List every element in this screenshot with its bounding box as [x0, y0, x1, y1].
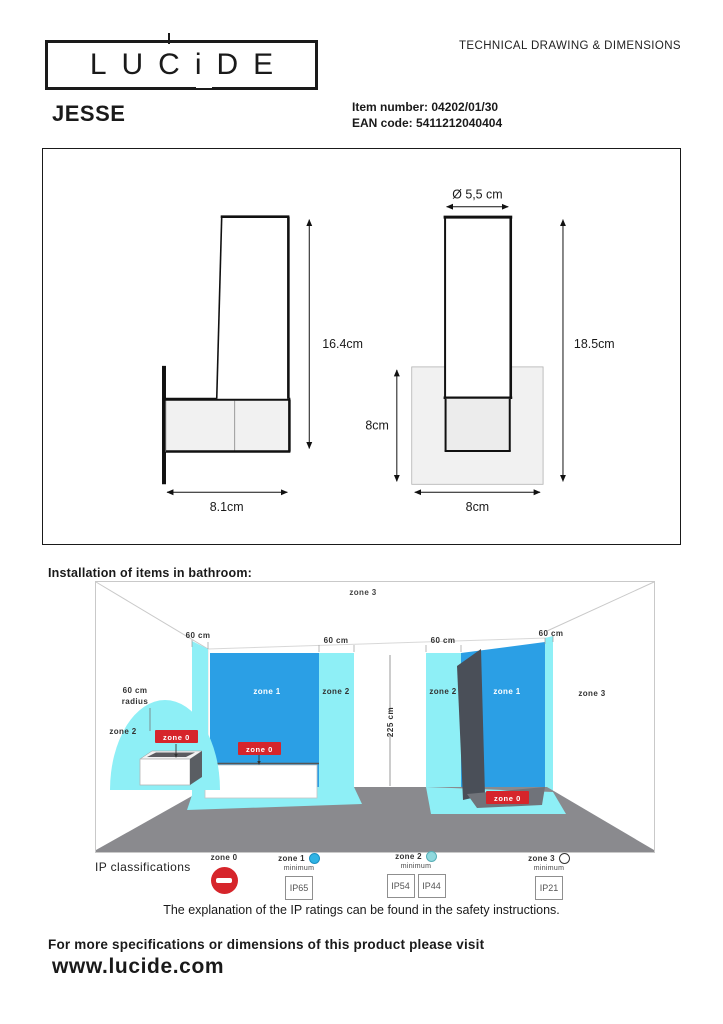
dim-225-label: 225 cm: [386, 707, 395, 737]
front-view-drawing: Ø 5,5 cm 8cm 18.5cm: [365, 188, 614, 514]
logo-accent-tick: [168, 33, 170, 44]
lamp-tube-front: [445, 217, 512, 399]
product-meta: Item number: 04202/01/30 EAN code: 54112…: [352, 99, 502, 131]
bathroom-zones-diagram: 225 cm zone 3 60 cm 60 cm 60 cm 60 cm zo…: [95, 581, 655, 853]
product-name: JESSE: [52, 101, 125, 127]
zone1-dot-icon: [309, 853, 320, 864]
zone2-b-label: zone 2: [429, 687, 456, 696]
ean-value: 5411212040404: [416, 116, 502, 130]
zone2-right-corner: [545, 636, 553, 795]
ean-label: EAN code:: [352, 116, 413, 130]
lamp-tube-side: [217, 217, 289, 399]
ip-legend-zone2: zone 2 minimum IP54 IP44: [384, 851, 448, 898]
zone3-wall-label: zone 3: [578, 689, 605, 698]
spec-sheet-page: LUCiDE TECHNICAL DRAWING & DIMENSIONS JE…: [0, 0, 723, 1024]
zone1-shower-label: zone 1: [493, 687, 520, 696]
dim60-bathtub: 60 cm: [324, 636, 349, 645]
ip-legend-zone3: zone 3 minimum IP21: [524, 853, 574, 900]
dimension-base-height: 8cm: [365, 370, 396, 481]
ip-legend-zone0: zone 0: [196, 853, 252, 894]
side-height-label: 16.4cm: [322, 337, 363, 351]
legend-zone3-label: zone 3: [528, 854, 555, 863]
zone3-circle-icon: [559, 853, 570, 864]
legend-zone1-label: zone 1: [278, 854, 305, 863]
ip-ratings-note: The explanation of the IP ratings can be…: [0, 903, 723, 917]
dim60-left: 60 cm: [186, 631, 211, 640]
zone2-minimum: minimum: [401, 863, 432, 870]
item-number-row: Item number: 04202/01/30: [352, 99, 502, 115]
ip65-box: IP65: [285, 876, 313, 900]
footer-text: For more specifications or dimensions of…: [48, 937, 484, 952]
zone0-bathtub-label: zone 0: [246, 745, 273, 754]
radius-label-1: 60 cm: [123, 686, 148, 695]
zone2-a-label: zone 2: [322, 687, 349, 696]
legend-zone0-label: zone 0: [211, 853, 238, 862]
diameter-label: Ø 5,5 cm: [452, 188, 502, 202]
ip54-box: IP54: [387, 874, 415, 898]
zone2-basin-label: zone 2: [109, 727, 136, 736]
legend-zone2-label: zone 2: [395, 852, 422, 861]
technical-drawing-panel: 16.4cm 8.1cm Ø 5,5 cm: [42, 148, 681, 545]
item-number-value: 04202/01/30: [431, 100, 498, 114]
zone1-minimum: minimum: [284, 865, 315, 872]
dimension-height-side: 16.4cm: [309, 220, 363, 449]
radius-label-2: radius: [122, 697, 149, 706]
technical-drawing-svg: 16.4cm 8.1cm Ø 5,5 cm: [43, 149, 680, 544]
dimension-width-side: 8.1cm: [167, 492, 287, 514]
lucide-logo-text: LUCiDE: [75, 48, 288, 82]
lucide-logo: LUCiDE: [45, 40, 318, 90]
dimension-base-width: 8cm: [415, 492, 540, 514]
logo-border-gap: [196, 84, 212, 88]
base-height-label: 8cm: [365, 419, 388, 433]
zone1-bathtub-label: zone 1: [253, 687, 280, 696]
item-number-label: Item number:: [352, 100, 428, 114]
lamp-base-side: [166, 400, 290, 452]
base-width-label: 8cm: [466, 500, 489, 514]
front-height-label: 18.5cm: [574, 337, 615, 351]
zone3-ceiling-label: zone 3: [349, 588, 376, 597]
dimension-total-height: 18.5cm: [563, 220, 615, 482]
washbasin-front: [140, 759, 190, 785]
bathtub-front: [205, 765, 317, 798]
side-width-label: 8.1cm: [210, 500, 244, 514]
no-entry-icon: [211, 867, 238, 894]
website-link[interactable]: www.lucide.com: [52, 955, 224, 979]
installation-title: Installation of items in bathroom:: [48, 566, 252, 580]
side-view-drawing: 16.4cm 8.1cm: [164, 217, 363, 515]
dim60-shower: 60 cm: [431, 636, 456, 645]
base-recess: [446, 399, 511, 451]
ean-row: EAN code: 5411212040404: [352, 115, 502, 131]
dim60-right: 60 cm: [539, 629, 564, 638]
zone2-dot-icon: [426, 851, 437, 862]
zone0-washbasin-label: zone 0: [163, 733, 190, 742]
ip21-box: IP21: [535, 876, 563, 900]
ip44-box: IP44: [418, 874, 446, 898]
ip-legend-zone1: zone 1 minimum IP65: [274, 853, 324, 900]
zone3-minimum: minimum: [534, 865, 565, 872]
document-title: TECHNICAL DRAWING & DIMENSIONS: [380, 40, 681, 52]
ip-classifications-title: IP classifications: [95, 860, 191, 874]
zone2-strip-left-of-shower: [426, 653, 461, 788]
zone2-strip-right-of-bathtub: [319, 653, 354, 788]
zone0-shower-label: zone 0: [494, 794, 521, 803]
